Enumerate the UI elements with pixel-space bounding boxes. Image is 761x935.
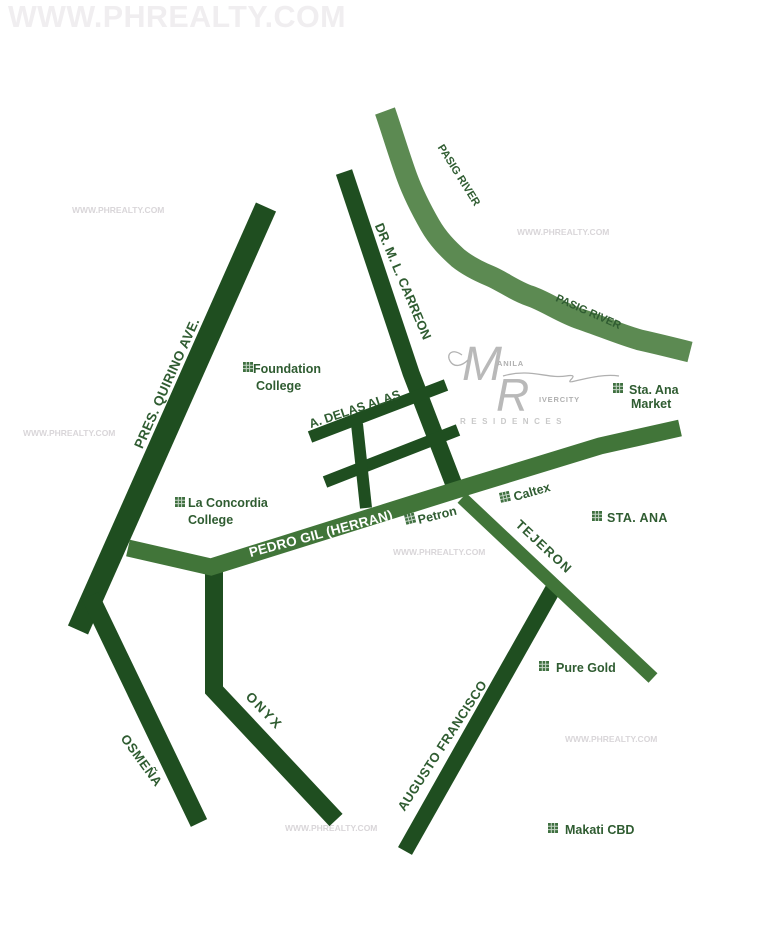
svg-text:College: College (256, 379, 301, 393)
svg-text:WWW.PHREALTY.COM: WWW.PHREALTY.COM (23, 428, 115, 438)
svg-text:IVERCITY: IVERCITY (539, 395, 580, 404)
svg-text:RESIDENCES: RESIDENCES (460, 417, 567, 426)
svg-text:STA. ANA: STA. ANA (607, 511, 668, 525)
svg-text:Makati CBD: Makati CBD (565, 823, 634, 837)
svg-text:WWW.PHREALTY.COM: WWW.PHREALTY.COM (565, 734, 657, 744)
svg-text:WWW.PHREALTY.COM: WWW.PHREALTY.COM (517, 227, 609, 237)
svg-text:WWW.PHREALTY.COM: WWW.PHREALTY.COM (8, 0, 346, 34)
svg-text:Market: Market (631, 397, 672, 411)
svg-text:College: College (188, 513, 233, 527)
svg-text:Sta. Ana: Sta. Ana (629, 383, 680, 397)
svg-text:Foundation: Foundation (253, 362, 321, 376)
svg-text:R: R (496, 369, 529, 421)
svg-text:La Concordia: La Concordia (188, 496, 269, 510)
svg-text:WWW.PHREALTY.COM: WWW.PHREALTY.COM (393, 547, 485, 557)
svg-text:Pure Gold: Pure Gold (556, 661, 616, 675)
svg-text:ANILA: ANILA (497, 359, 524, 368)
svg-text:WWW.PHREALTY.COM: WWW.PHREALTY.COM (72, 205, 164, 215)
